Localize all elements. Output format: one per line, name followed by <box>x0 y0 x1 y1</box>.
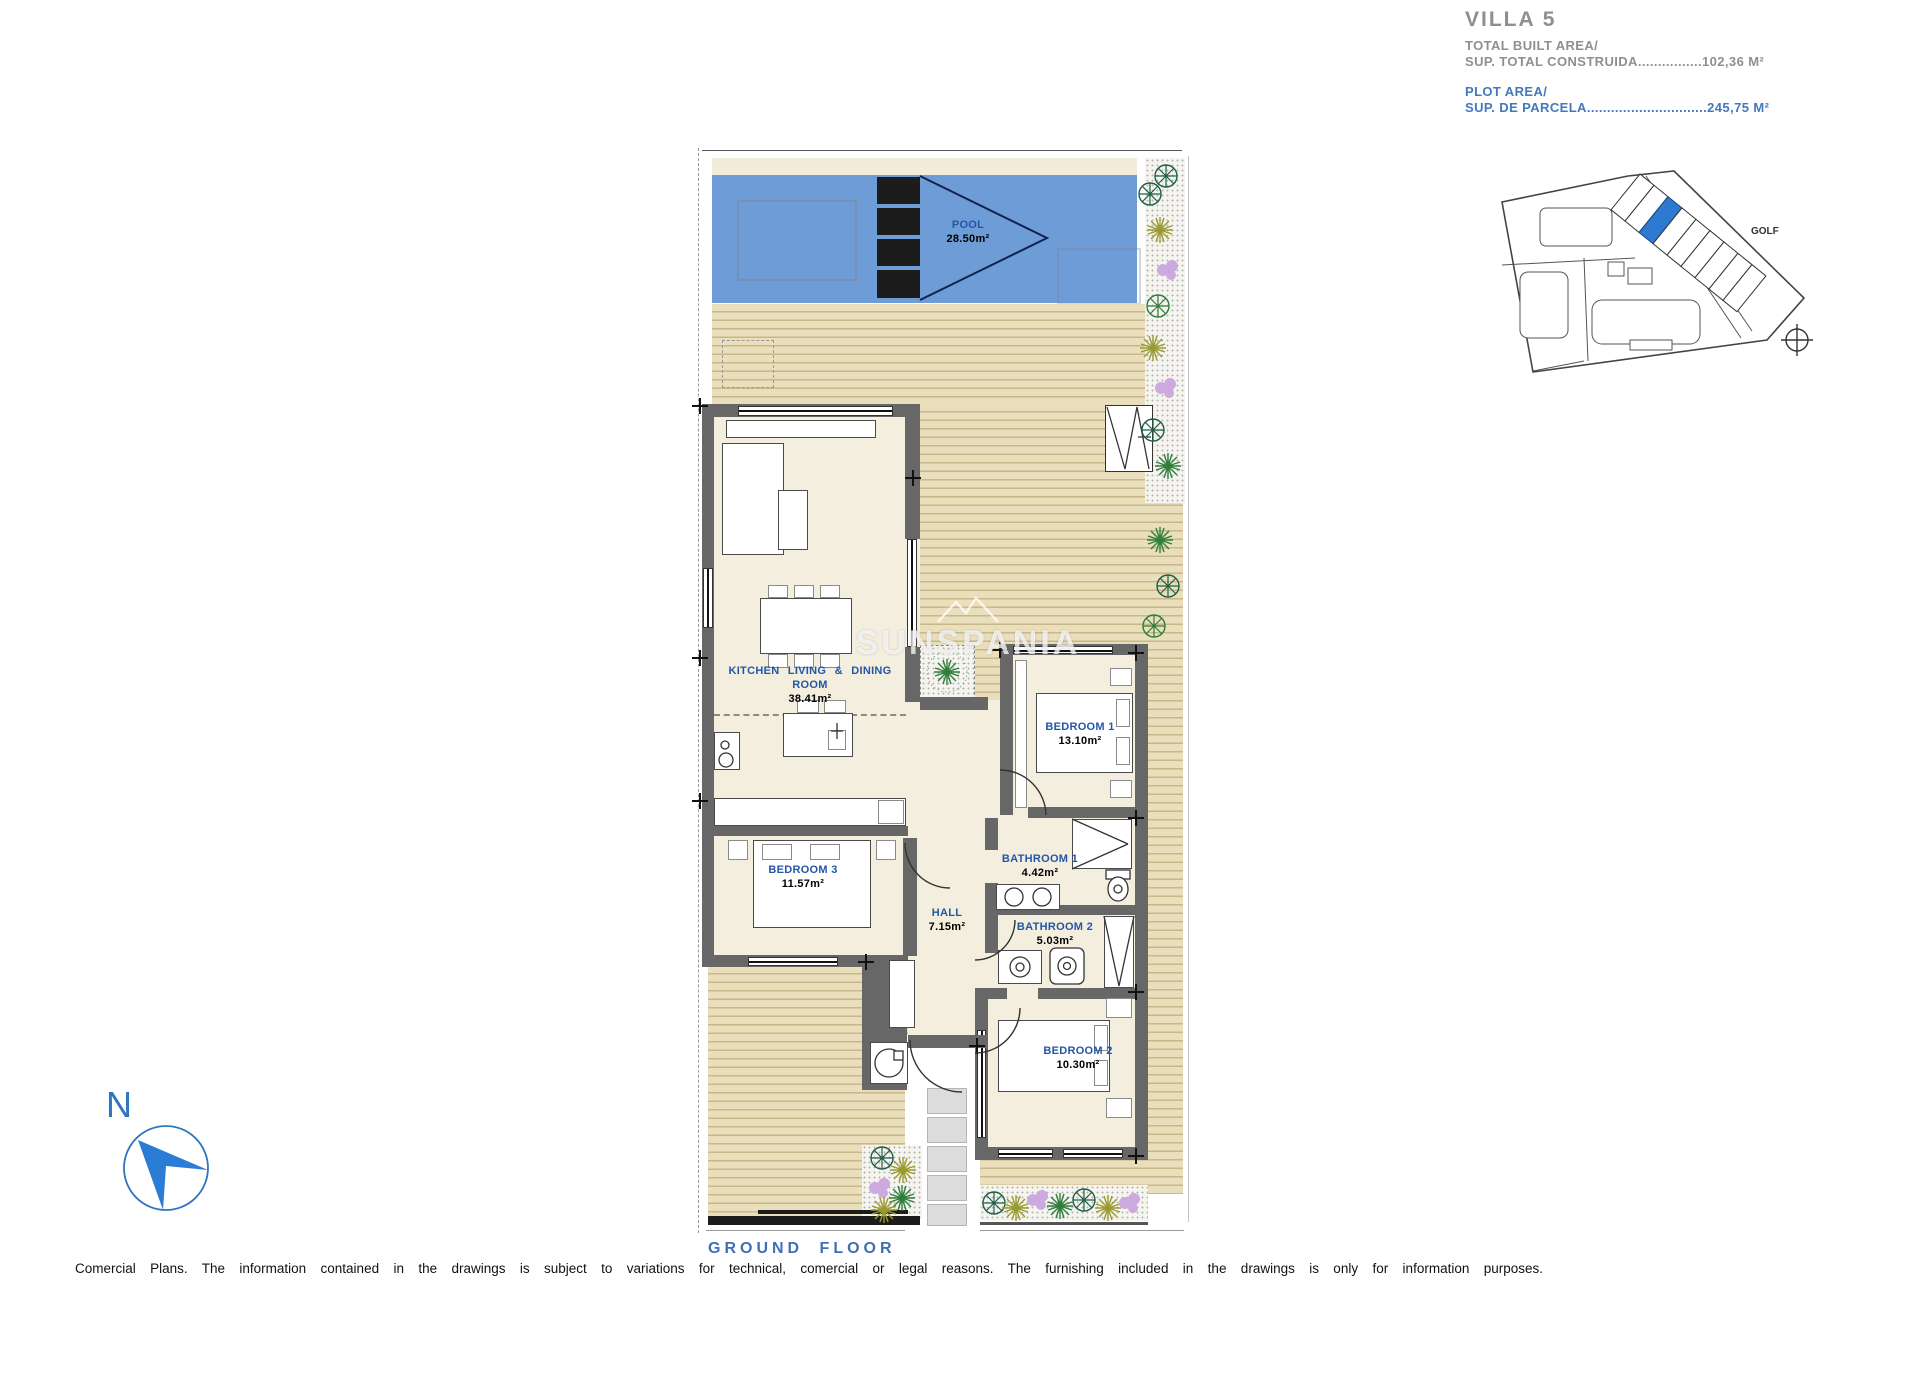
dining-chair <box>820 585 840 598</box>
kitchen-label: KITCHEN LIVING & DINING ROOM 38.41m² <box>710 664 910 706</box>
site-building <box>1628 268 1652 284</box>
wall-tick <box>692 793 708 809</box>
bath1-vanity <box>996 884 1060 910</box>
pool-area: 28.50m² <box>918 232 1018 246</box>
flowerbed-sill <box>980 1222 1148 1225</box>
window-west <box>703 568 713 628</box>
nightstand <box>1106 1098 1132 1118</box>
villa-title: VILLA 5 <box>1465 8 1885 32</box>
wall-under-planter <box>920 697 988 710</box>
flowerbed-left <box>862 1145 922 1219</box>
pergola-lines <box>1105 405 1153 472</box>
terrace-south-sill <box>758 1210 908 1214</box>
plot-area-value: SUP. DE PARCELA.........................… <box>1465 100 1885 116</box>
sideboard <box>726 420 876 438</box>
kitchen-area: 38.41m² <box>710 692 910 706</box>
crosshair-icon <box>1781 324 1813 356</box>
entrance-step <box>927 1204 967 1226</box>
wall-tick <box>692 398 708 414</box>
dining-chair <box>768 585 788 598</box>
entrance-step <box>927 1088 967 1114</box>
window-bed2-south <box>1063 1149 1123 1158</box>
property-line-right <box>1188 156 1189 1222</box>
site-minimap-drawing: GOLF <box>1488 150 1818 385</box>
wardrobe-bed1 <box>1015 660 1027 808</box>
terrace-south-wall <box>708 1216 920 1225</box>
entrance-step <box>927 1146 967 1172</box>
pillow <box>762 844 792 860</box>
bathroom2-label: BATHROOM 2 5.03m² <box>1005 920 1105 948</box>
window-bed2-south <box>998 1149 1053 1158</box>
deck-top <box>712 304 1145 404</box>
site-building <box>1520 272 1568 338</box>
bathroom1-area: 4.42m² <box>990 866 1090 880</box>
kitchen-name: KITCHEN LIVING & DINING ROOM <box>728 665 891 691</box>
hall-label: HALL 7.15m² <box>912 906 982 934</box>
window-bed3-south <box>748 957 838 966</box>
wall-tick <box>1128 645 1144 661</box>
entrance-step <box>927 1117 967 1143</box>
info-block: VILLA 5 TOTAL BUILT AREA/ SUP. TOTAL CON… <box>1465 8 1885 116</box>
bathroom2-name: BATHROOM 2 <box>1017 921 1093 933</box>
watermark: SUNSPANIA <box>838 624 1098 663</box>
bedroom2-name: BEDROOM 2 <box>1043 1045 1112 1057</box>
bathroom1-name: BATHROOM 1 <box>1002 853 1078 865</box>
bath2-vanity <box>998 950 1042 984</box>
wall-bath1-west <box>985 818 998 850</box>
pool-label: POOL 28.50m² <box>918 218 1018 246</box>
property-line-left <box>698 148 699 1233</box>
bedroom3-name: BEDROOM 3 <box>768 864 837 876</box>
nightstand <box>876 840 896 860</box>
site-building <box>1608 262 1624 276</box>
nightstand <box>1110 780 1132 798</box>
bathroom1-label: BATHROOM 1 4.42m² <box>990 852 1090 880</box>
wall-tick <box>858 954 874 970</box>
built-area-label: TOTAL BUILT AREA/ <box>1465 38 1885 54</box>
deck-dashed-outline <box>722 340 774 388</box>
entrance-step <box>927 1175 967 1201</box>
pillow <box>810 844 840 860</box>
armchair <box>778 490 808 550</box>
wall-tick <box>692 650 708 666</box>
pool-name: POOL <box>952 219 984 231</box>
floor-plan: POOL 28.50m² <box>698 148 1208 1233</box>
bedroom3-area: 11.57m² <box>753 877 853 891</box>
dining-chair <box>794 585 814 598</box>
site-building <box>1630 340 1672 350</box>
site-minimap: GOLF <box>1488 150 1818 385</box>
site-building <box>1592 300 1700 344</box>
wall-tick <box>905 470 921 486</box>
bedroom1-label: BEDROOM 1 13.10m² <box>1030 720 1130 748</box>
hall-closet <box>889 960 915 1028</box>
wall-bed3-hall <box>903 838 917 956</box>
sofa <box>722 443 784 555</box>
compass-rose-icon <box>100 1104 230 1230</box>
disclaimer-text: Comercial Plans. The information contain… <box>75 1261 1543 1276</box>
bedroom2-label: BEDROOM 2 10.30m² <box>1028 1044 1128 1072</box>
nightstand <box>728 840 748 860</box>
wall-east <box>1135 644 1148 1160</box>
bedroom1-name: BEDROOM 1 <box>1045 721 1114 733</box>
wall-tick <box>969 1038 985 1054</box>
kitchen-sink <box>878 800 904 824</box>
compass: N <box>100 1090 230 1230</box>
wall-tick <box>1128 1148 1144 1164</box>
site-building <box>1540 208 1612 246</box>
bedroom2-area: 10.30m² <box>1028 1058 1128 1072</box>
island-sink <box>828 730 846 750</box>
wall-bed1-west <box>1000 650 1013 815</box>
nightstand <box>1106 998 1132 1018</box>
bedroom1-area: 13.10m² <box>1030 734 1130 748</box>
golf-label: GOLF <box>1751 226 1779 237</box>
nightstand <box>1110 668 1132 686</box>
cooktop-unit <box>714 732 740 770</box>
ground-floor-caption: GROUND FLOOR <box>708 1240 896 1258</box>
hall-name: HALL <box>932 907 963 919</box>
bathroom2-area: 5.03m² <box>1005 934 1105 948</box>
wall-kitchen-bed3 <box>710 826 908 836</box>
bath2-shower <box>1104 916 1134 988</box>
flowerbed-right <box>980 1185 1148 1221</box>
plot-area-label: PLOT AREA/ <box>1465 84 1885 100</box>
window-living-north <box>738 406 893 416</box>
utility-closet <box>870 1042 908 1084</box>
bedroom3-label: BEDROOM 3 11.57m² <box>753 863 853 891</box>
hall-area: 7.15m² <box>912 920 982 934</box>
built-area-value: SUP. TOTAL CONSTRUIDA................102… <box>1465 54 1885 70</box>
page: { "header": { "title": "VILLA 5", "built… <box>0 0 1920 1280</box>
watermark-logo <box>936 596 1000 624</box>
